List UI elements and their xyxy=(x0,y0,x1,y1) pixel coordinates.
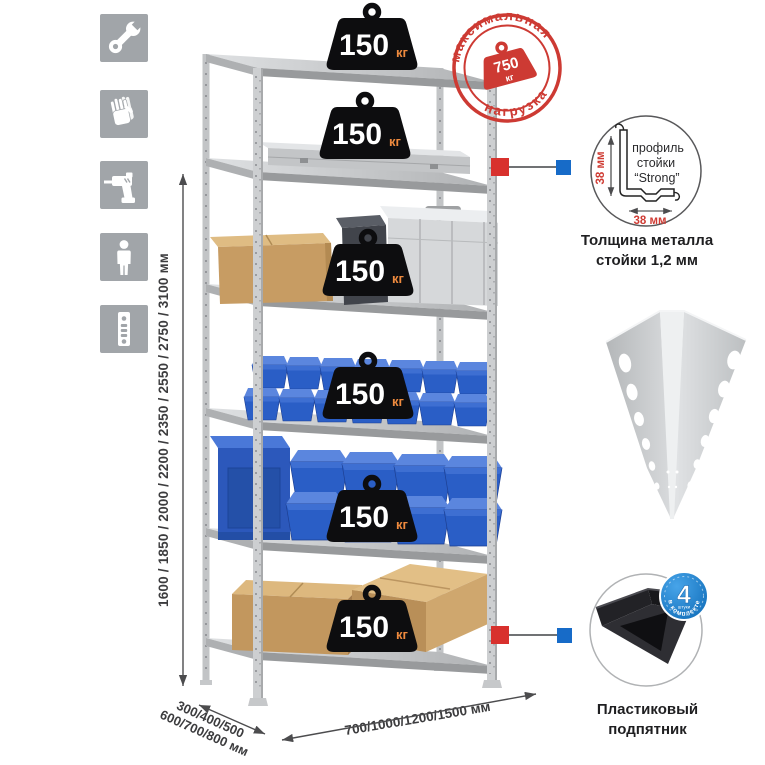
svg-text:кг: кг xyxy=(392,271,405,286)
svg-text:кг: кг xyxy=(396,45,409,60)
svg-text:38 мм: 38 мм xyxy=(633,215,666,227)
foot-callout-marker xyxy=(491,626,572,644)
blue-container xyxy=(210,436,290,540)
svg-text:150: 150 xyxy=(335,255,385,288)
svg-text:150: 150 xyxy=(339,611,389,644)
svg-text:стойки: стойки xyxy=(637,156,675,170)
shelf-weight-1: 150 кг xyxy=(327,6,418,71)
svg-text:150: 150 xyxy=(339,501,389,534)
svg-text:150: 150 xyxy=(339,29,389,62)
svg-text:штуки: штуки xyxy=(678,605,691,610)
metal-post-image xyxy=(606,311,746,519)
shelving-infographic: 1600 / 1850 / 2000 / 2200 / 2350 / 2550 … xyxy=(0,0,765,765)
post-callout-marker xyxy=(491,158,571,176)
svg-text:150: 150 xyxy=(335,378,385,411)
max-load-stamp: максимальная нагрузка 750 кг xyxy=(438,0,575,134)
svg-text:профиль: профиль xyxy=(632,141,684,155)
scene-svg: 150 кг 150 кг 150 кг 150 кг 150 кг 150 к… xyxy=(0,0,765,765)
shelf-weight-2: 150 кг xyxy=(320,95,411,160)
svg-text:38 мм: 38 мм xyxy=(595,151,607,184)
quantity-badge: 4 штуки в комплекте xyxy=(660,572,708,620)
svg-text:кг: кг xyxy=(396,627,409,642)
svg-text:кг: кг xyxy=(396,517,409,532)
svg-text:“Strong”: “Strong” xyxy=(634,171,679,185)
svg-text:150: 150 xyxy=(332,118,382,151)
cardboard-box-shelf3 xyxy=(210,233,333,304)
profile-detail-circle: 38 мм 38 мм профиль стойки “Strong” xyxy=(591,116,701,227)
svg-text:кг: кг xyxy=(389,134,402,149)
svg-text:кг: кг xyxy=(392,394,405,409)
